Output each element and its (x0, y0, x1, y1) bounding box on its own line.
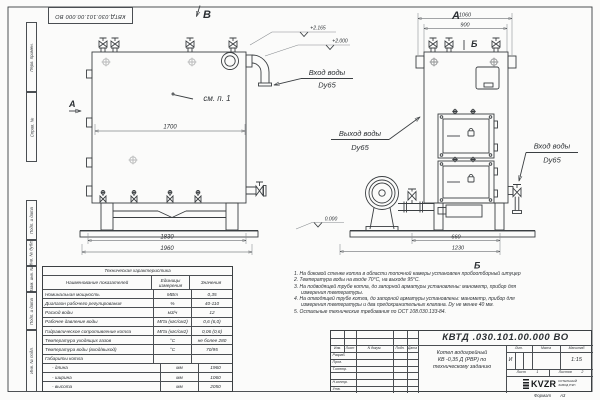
margin-field-perv-primen: Перв. примен. (26, 22, 37, 92)
air-duct (398, 189, 434, 213)
water-inlet-front-callout: Вход воды Dy65 (274, 68, 353, 90)
table-row: - ширинамм1060 (43, 373, 232, 382)
tb-row-tkontr: Т.контр. (331, 367, 358, 371)
scale-header: Масштаб (560, 345, 593, 352)
top-valve-icon (445, 38, 453, 52)
margin-field-podp-data-1: Подп. и дата (26, 200, 37, 240)
ground-line (350, 231, 535, 238)
chimney-flange (222, 53, 239, 70)
tb-row-nkontr: Н.контр. (331, 380, 358, 384)
top-valve-icon (429, 38, 437, 52)
col-header-values: Значения (190, 276, 232, 289)
table-row: Рабочее давление водыМПа (кгс/см2)0,6 (6… (43, 318, 232, 327)
spec-table: Техническая характеристика Наименование … (42, 266, 233, 392)
inlet-side-label: Вход воды (534, 142, 571, 151)
sheets-cell: Листов2 (549, 369, 593, 376)
top-valve-icon (492, 38, 500, 52)
margin-field-vzam-inv: Взам. инв. № (26, 266, 37, 292)
col-header-units: Единицы измерения (152, 276, 190, 289)
bolt-icon (470, 109, 475, 114)
water-inlet-side-callout: Вход воды Dy65 (519, 142, 578, 182)
top-valve-icon (229, 38, 237, 52)
drain-valve-icon (131, 191, 137, 204)
water-outlet-callout: Выход воды Dy65 (331, 117, 420, 152)
logo-subtitle: КОТЕЛЬНЫЙ ЗАВОД РЭП (558, 380, 577, 387)
tb-col-podp: Подп. (393, 346, 407, 350)
scale-value: 1:15 (560, 352, 593, 369)
margin-field-inv-podl: Инв. № подл. (26, 330, 37, 392)
upper-door (438, 114, 498, 158)
drain-valve-icon (195, 191, 201, 204)
front-view-label: В (203, 9, 211, 21)
flange-bolt-icon (430, 58, 439, 67)
see-note-label: см. п. 1 (203, 94, 230, 103)
top-doc-number-text: КВТД.030.101.00.000 ВО (55, 13, 125, 19)
center-mark-icon (129, 156, 138, 165)
logo-stripes-icon (523, 379, 529, 389)
inlet-side-dn-label: Dy65 (543, 156, 561, 165)
support-legs (101, 203, 238, 230)
doc-number: КВТД .030.101.00.000 ВО (418, 331, 593, 345)
spec-table-title: Техническая характеристика (43, 267, 232, 276)
water-inlet-elbow (246, 55, 272, 86)
dim-1960: 1960 (82, 244, 252, 255)
spec-table-header: Наименование показателей Единицы измерен… (43, 276, 232, 290)
drain-valve-icon (167, 191, 173, 204)
section-bottom-label: Б (474, 261, 481, 271)
margin-field-sprav-n: Справ. № (26, 92, 37, 162)
side-arrow-label: А (68, 99, 76, 109)
side-view: 1060 900 Б (296, 10, 578, 271)
elevation-icon (300, 32, 308, 37)
elev-zero-label: 0.000 (325, 217, 338, 223)
elevation-mark-zero: 0.000 (296, 217, 344, 230)
tb-col-data: Дата (407, 346, 418, 350)
elevation-mark-top: +2.165 (250, 26, 336, 46)
elev-mid-label: +2.000 (332, 39, 348, 45)
dim-900-label: 900 (460, 23, 470, 29)
tb-col-list: Лист (344, 346, 356, 350)
bolt-icon (452, 109, 457, 114)
title-block: Изм. Лист N докум. Подп. Дата Разраб. Пр… (330, 330, 592, 392)
drain-valve-icon (100, 191, 106, 204)
lower-door (438, 161, 498, 203)
top-valve-icon (186, 38, 194, 52)
blower-fan (366, 177, 399, 231)
outlet-dn-label: Dy65 (351, 143, 369, 152)
elevation-icon (326, 45, 334, 50)
center-mark-icon (102, 58, 111, 67)
table-row: Температура воды (вход/выход)°С70/95 (43, 345, 232, 354)
tb-row-utv: Утв. (331, 387, 358, 391)
center-mark-icon (188, 58, 197, 67)
tb-col-ndocum: N докум. (356, 346, 393, 350)
drawing-sheet: { "sheet": { "top_stamp": "КВТД.030.101.… (0, 0, 600, 400)
control-panel (476, 67, 499, 89)
dim-1830-label: 1830 (160, 235, 174, 241)
dim-1700: 1700 (95, 124, 245, 135)
top-doc-number-stamp: КВТД.030.101.00.000 ВО (48, 7, 133, 24)
table-row: Диапазон рабочего регулирования%40-110 (43, 299, 232, 308)
padlock-icon (468, 128, 474, 136)
dim-1060-label: 1060 (459, 13, 472, 19)
dim-1700-label: 1700 (163, 125, 177, 131)
table-row: - высотамм2050 (43, 382, 232, 390)
lit-value: И (506, 352, 515, 369)
inlet-front-label: Вход воды (309, 68, 346, 77)
mass-header: Масса (532, 345, 560, 352)
tb-row-razrab: Разраб. (331, 353, 358, 357)
dim-1230: 1230 (340, 244, 500, 255)
elev-top-label: +2.165 (310, 26, 326, 32)
ash-drawer (438, 205, 482, 217)
dim-1230-label: 1230 (452, 246, 465, 252)
dim-660: 660 (412, 233, 500, 244)
tb-row-prov: Пров. (331, 360, 358, 364)
format-label: Формат А3 (534, 393, 565, 398)
section-top-label: Б (471, 39, 478, 49)
dim-1960-label: 1960 (160, 246, 174, 252)
elevation-icon (314, 223, 322, 228)
inlet-pipe-valve (508, 185, 522, 214)
company-logo: KVZR КОТЕЛЬНЫЙ ЗАВОД РЭП (509, 377, 591, 391)
dim-1830: 1830 (88, 233, 246, 244)
table-row: Температура уходящих газов°Сне более 280 (43, 336, 232, 345)
table-row: Номинальная мощностьМВт0,35 (43, 290, 232, 299)
table-row: Гидравлическое сопротивление котлаМПа (к… (43, 327, 232, 336)
note-line: 5. Остальные технические требования по О… (294, 309, 590, 315)
lit-header: Лит. (506, 345, 532, 352)
outlet-label: Выход воды (339, 129, 382, 138)
technical-notes: 1. На боковой стенке котла в области топ… (294, 271, 590, 315)
margin-field-podp-data-2: Подп. и дата (26, 292, 37, 330)
front-view: 1700 1830 1960 В А см. п. 1 +2.165 (68, 6, 353, 256)
sheet-cell: Лист1 (506, 369, 549, 376)
side-view-label: А (451, 10, 460, 22)
dim-660-label: 660 (451, 235, 461, 241)
top-valve-icon (99, 38, 107, 52)
drain-pipe-valve (246, 182, 266, 196)
table-row: - длинамм1960 (43, 364, 232, 373)
margin-field-inv-dubl: Инв. № дубл. (26, 240, 37, 266)
table-row: Расход водым3/ч12 (43, 308, 232, 317)
doc-name: Котел водогрейный КВ -0,35 Д (РВР) по те… (418, 345, 506, 398)
col-header-name: Наименование показателей (43, 276, 152, 289)
flange-bolt-icon (490, 58, 499, 67)
padlock-icon (468, 174, 474, 182)
top-valve-icon (111, 38, 119, 52)
logo-text: KVZR (531, 379, 556, 389)
inlet-front-dn-label: Dy65 (318, 81, 336, 90)
table-row: Габариты котла (43, 355, 232, 364)
see-note-callout: см. п. 1 (172, 93, 231, 103)
tb-col-izm: Изм. (331, 346, 344, 350)
elevation-mark-mid: +2.000 (265, 39, 350, 57)
